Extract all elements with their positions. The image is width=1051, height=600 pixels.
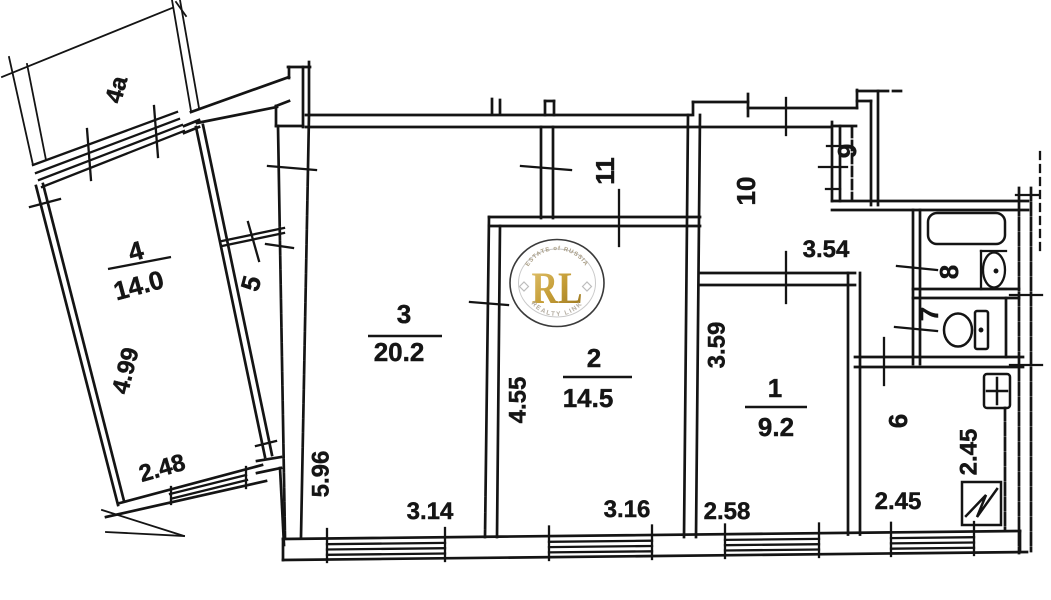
svg-text:14.0: 14.0 (110, 264, 167, 306)
svg-text:8: 8 (934, 265, 964, 279)
svg-text:5.96: 5.96 (307, 451, 334, 498)
svg-text:2.45: 2.45 (875, 488, 922, 515)
svg-text:4а: 4а (100, 73, 133, 106)
svg-text:11: 11 (590, 157, 620, 185)
svg-text:7: 7 (914, 307, 944, 321)
svg-text:4.55: 4.55 (504, 377, 531, 424)
svg-text:2.45: 2.45 (955, 429, 982, 476)
svg-text:3.16: 3.16 (604, 496, 651, 523)
svg-text:5: 5 (235, 273, 268, 295)
svg-text:9.2: 9.2 (758, 412, 794, 442)
svg-text:2: 2 (587, 343, 601, 373)
svg-text:3.14: 3.14 (407, 498, 454, 525)
svg-text:10: 10 (731, 177, 761, 206)
svg-text:3: 3 (397, 299, 411, 329)
svg-text:2.48: 2.48 (136, 449, 188, 488)
svg-text:6: 6 (883, 414, 913, 428)
svg-text:3.54: 3.54 (803, 236, 850, 263)
svg-text:2.58: 2.58 (704, 498, 751, 525)
svg-text:14.5: 14.5 (563, 383, 614, 413)
svg-text:1: 1 (768, 373, 782, 403)
svg-text:3.59: 3.59 (703, 322, 730, 369)
svg-text:9: 9 (832, 144, 862, 158)
svg-text:20.2: 20.2 (374, 337, 425, 367)
svg-text:4.99: 4.99 (107, 345, 145, 397)
